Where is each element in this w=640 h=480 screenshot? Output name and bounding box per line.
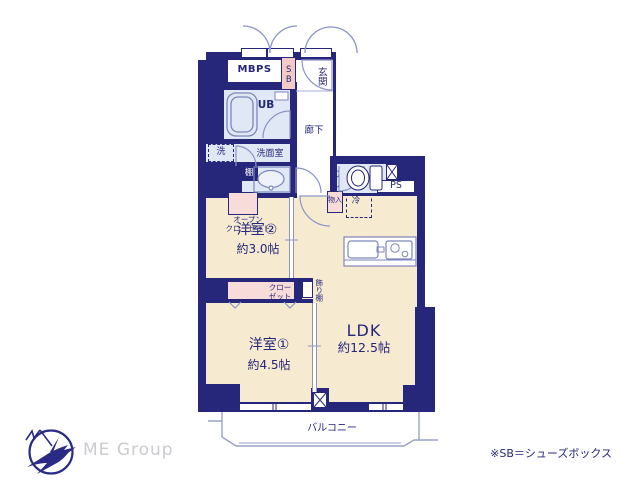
door-leaf-entrance — [300, 48, 332, 58]
label-ldk: LDK — [332, 322, 396, 340]
window-room1 — [240, 402, 311, 412]
label-western-room1: 洋室① — [232, 338, 306, 353]
label-closet-line2: ゼット — [269, 292, 292, 301]
partition-room1-ldk — [312, 303, 317, 392]
shaft-box — [313, 392, 327, 408]
meter-box — [386, 164, 398, 180]
wall-corner-bottom-left — [204, 384, 240, 412]
label-western-room2-size: 約3.0帖 — [221, 243, 295, 256]
wall-ub-left — [198, 82, 224, 144]
label-toilet: トイレ — [330, 163, 342, 194]
label-ldk-size: 約12.5帖 — [327, 341, 401, 355]
floor-plan: MBPS SB 玄関 UB 廊下 洗 洗面室 棚 トイレ PS 物入 冷 オープ… — [0, 0, 640, 480]
wall-entrance-right — [333, 52, 336, 158]
wall-bottom-middle — [329, 402, 369, 412]
wall-ub-hallway — [290, 88, 297, 197]
label-display-shelf: 飾り棚 — [313, 276, 325, 304]
label-western-room2: 洋室② — [221, 223, 293, 238]
wall-right-upper — [417, 196, 425, 308]
wall-closet-left — [206, 278, 228, 303]
label-washroom: 洗面室 — [248, 150, 292, 160]
label-mbps: MBPS — [228, 64, 281, 75]
label-storage: 物入 — [326, 197, 344, 205]
label-closet: クロー ゼット — [263, 283, 297, 302]
door-arc-room2 — [296, 168, 321, 193]
unit-bath-floor — [224, 90, 290, 139]
label-pipe-space: PS — [377, 181, 415, 191]
logo-bird-icon — [26, 430, 76, 474]
label-balcony: バルコニー — [294, 423, 370, 434]
label-entrance: 玄関 — [312, 60, 330, 92]
label-western-room1-size: 約4.5帖 — [232, 359, 306, 372]
wall-corner-bottom-right — [403, 385, 435, 412]
label-unit-bath: UB — [250, 100, 282, 112]
label-washer: 洗 — [208, 148, 234, 158]
door-leaf-mbps-left — [241, 48, 267, 58]
label-hallway: 廊下 — [295, 126, 333, 136]
footnote: ※SB＝シューズボックス — [440, 448, 612, 460]
wall-left-chunk — [206, 162, 242, 194]
open-closet-box — [228, 192, 258, 215]
label-closet-line1: クロー — [269, 283, 292, 292]
door-leaf-mbps-right — [267, 48, 294, 58]
label-shelf: 棚 — [240, 166, 258, 181]
window-ldk — [369, 402, 403, 412]
display-shelf-box — [302, 281, 313, 298]
label-refrigerator: 冷 — [348, 197, 364, 206]
logo-text: ME Group — [83, 441, 193, 460]
label-shoe-box: SB — [281, 61, 296, 88]
